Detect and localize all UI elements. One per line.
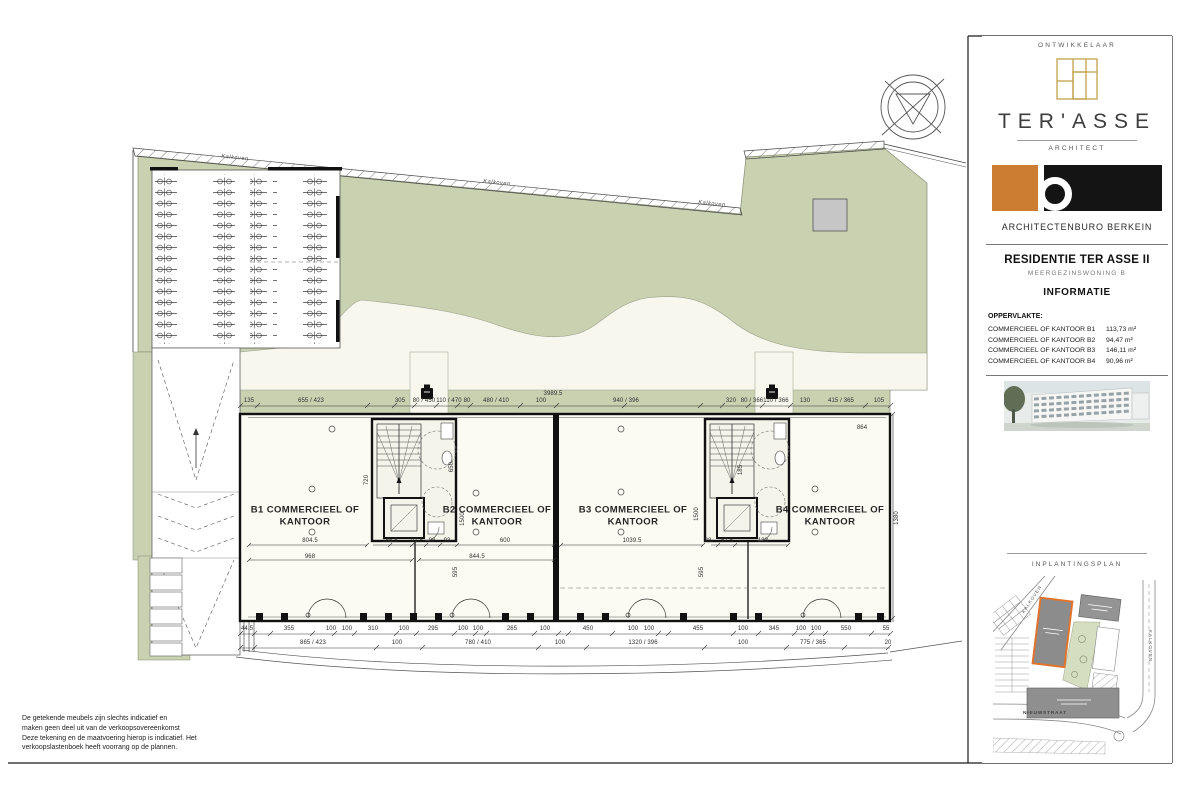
- area-value: 90,96 m²: [1106, 357, 1148, 368]
- siteplan-map: KALKOVEN KALKOVEN NIEUWSTRAAT: [993, 576, 1161, 761]
- terasse-logo-icon: [1055, 56, 1099, 102]
- siteplan-label: INPLANTINGSPLAN: [982, 561, 1172, 568]
- project-title: RESIDENTIE TER ASSE II: [982, 254, 1172, 266]
- disclaimer-line: verkoopslastenboek heeft voorrang op de …: [22, 743, 197, 753]
- street-label-kalkoven-right: KALKOVEN: [1148, 630, 1153, 662]
- stair-core: [372, 419, 456, 541]
- area-label: COMMERCIEEL OF KANTOOR B1: [988, 325, 1106, 336]
- sidewalk: [236, 641, 962, 674]
- architect-name: ARCHITECTENBURO BERKEIN: [982, 222, 1172, 232]
- divider: [986, 244, 1168, 245]
- area-row: COMMERCIEEL OF KANTOOR B294,47 m²: [988, 336, 1148, 347]
- area-row: COMMERCIEEL OF KANTOOR B1113,73 m²: [988, 325, 1148, 336]
- storage-boxes: [150, 558, 182, 656]
- info-title: INFORMATIE: [982, 287, 1172, 298]
- area-value: 146,11 m²: [1106, 346, 1148, 357]
- area-label: COMMERCIEEL OF KANTOOR B4: [988, 357, 1106, 368]
- divider: [1017, 140, 1137, 141]
- building-render-image: [1004, 381, 1150, 431]
- street-label-nieuwstraat: NIEUWSTRAAT: [1023, 710, 1067, 716]
- area-label: COMMERCIEEL OF KANTOOR B3: [988, 346, 1106, 357]
- area-label: COMMERCIEEL OF KANTOOR B2: [988, 336, 1106, 347]
- title-block: ONTWIKKELAAR TER'ASSE ARCHITECT: [982, 36, 1172, 763]
- surface-area-table: COMMERCIEEL OF KANTOOR B1113,73 m²COMMER…: [988, 325, 1148, 367]
- developer-name: TER'ASSE: [982, 110, 1172, 134]
- area-row: COMMERCIEEL OF KANTOOR B490,96 m²: [988, 357, 1148, 368]
- berkein-logo-icon: [992, 164, 1162, 212]
- bike-parking: [150, 167, 342, 348]
- building-outline: [240, 414, 890, 621]
- drawing-sheet: 3989.5135655 / 42330580 / 450110 / 47080…: [0, 0, 1200, 800]
- project-subtitle: MEERGEZINSWONING B: [982, 270, 1172, 277]
- area-value: 113,73 m²: [1106, 325, 1148, 336]
- architect-label: ARCHITECT: [982, 145, 1172, 152]
- surface-area-label: OPPERVLAKTE:: [988, 313, 1043, 320]
- compass-icon: [881, 75, 945, 139]
- divider: [1007, 553, 1147, 554]
- divider: [986, 375, 1168, 376]
- utility-pad: [813, 199, 847, 231]
- area-value: 94,47 m²: [1106, 336, 1148, 347]
- area-row: COMMERCIEEL OF KANTOOR B3146,11 m²: [988, 346, 1148, 357]
- developer-label: ONTWIKKELAAR: [982, 42, 1172, 49]
- disclaimer-text: De getekende meubels zijn slechts indica…: [22, 714, 197, 753]
- disclaimer-line: Deze tekening en de maatvoering hierop i…: [22, 734, 197, 744]
- disclaimer-line: De getekende meubels zijn slechts indica…: [22, 714, 197, 724]
- disclaimer-line: maken geen deel uit van de verkoopsovere…: [22, 724, 197, 734]
